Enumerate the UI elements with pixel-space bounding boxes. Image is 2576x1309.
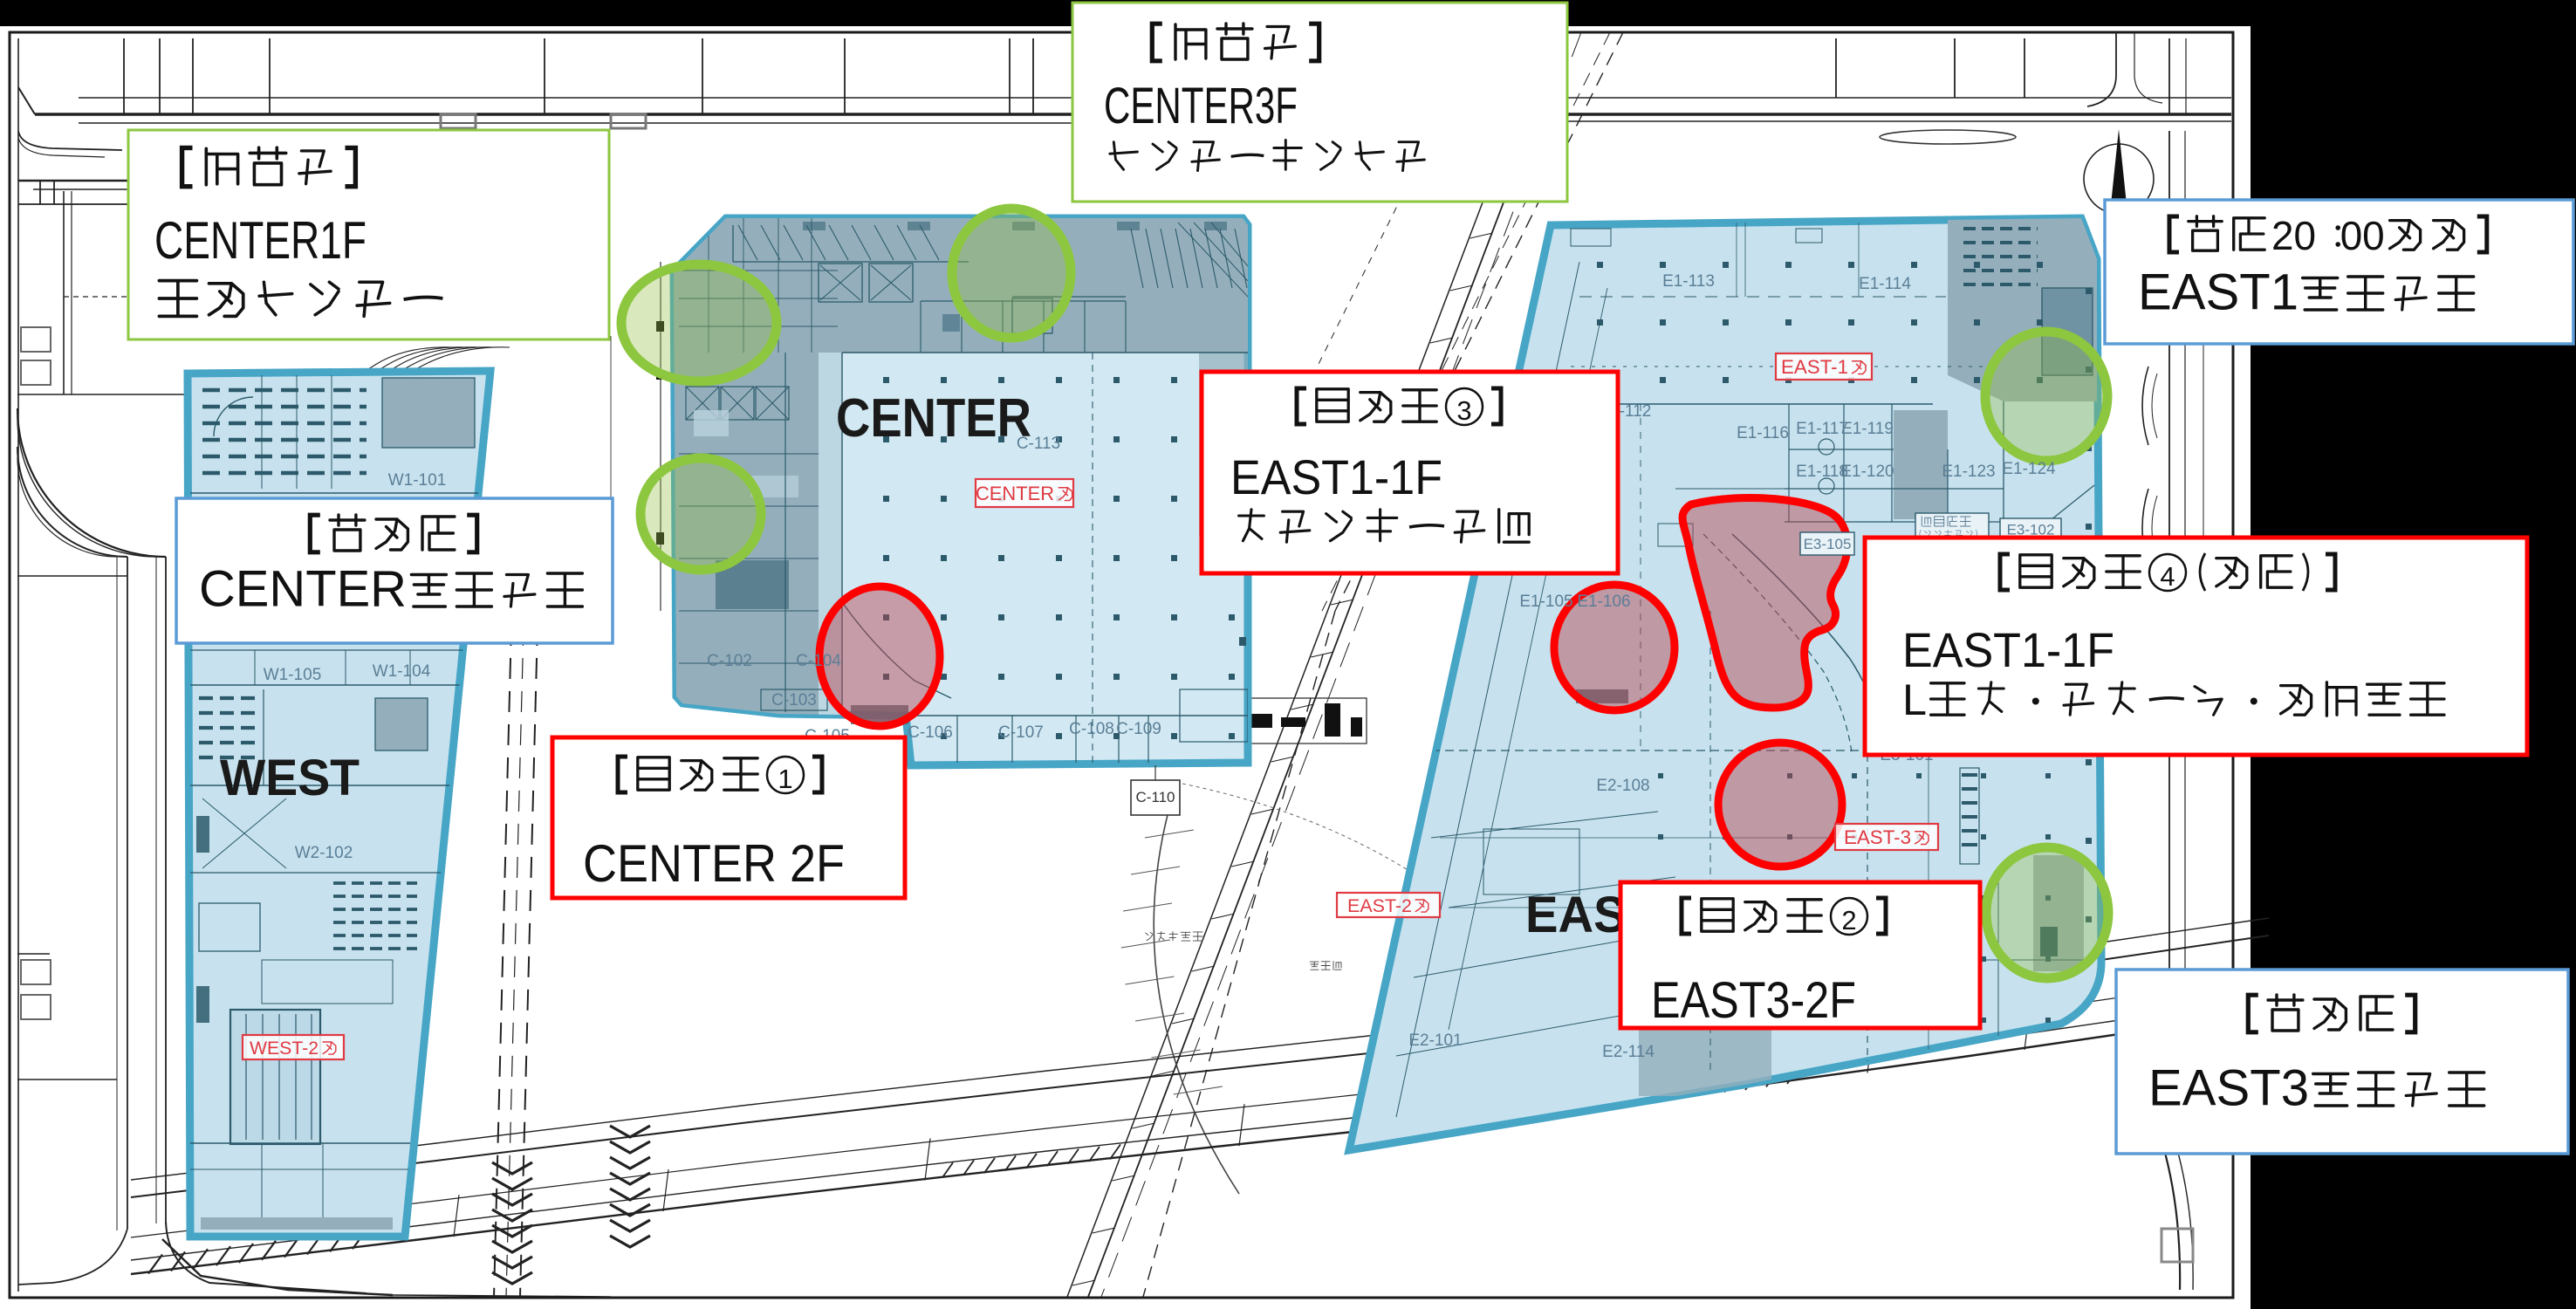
svg-text:C-103: C-103 xyxy=(771,691,817,709)
svg-text:CENTER: CENTER xyxy=(199,561,407,618)
svg-text:EAST1-1F: EAST1-1F xyxy=(1230,449,1442,504)
svg-text:CENTER: CENTER xyxy=(836,388,1031,449)
svg-text:W1-101: W1-101 xyxy=(388,471,447,490)
svg-text:EAST-2: EAST-2 xyxy=(1347,896,1412,916)
svg-text:00: 00 xyxy=(2340,213,2385,258)
svg-text:EAST3-2F: EAST3-2F xyxy=(1651,972,1856,1029)
svg-text:EAST1: EAST1 xyxy=(2138,264,2299,321)
svg-text:3: 3 xyxy=(1456,395,1471,426)
svg-text:EAST1-1F: EAST1-1F xyxy=(1902,622,2114,677)
svg-text:W2-102: W2-102 xyxy=(295,844,353,862)
svg-text:C-109: C-109 xyxy=(1116,720,1161,738)
svg-text:E1-119: E1-119 xyxy=(1841,420,1894,438)
svg-text:E1-123: E1-123 xyxy=(1942,463,1995,481)
svg-text:C-106: C-106 xyxy=(908,723,953,742)
svg-text:4: 4 xyxy=(2160,561,2175,592)
svg-text:C-102: C-102 xyxy=(707,652,752,670)
svg-text:EAST-1: EAST-1 xyxy=(1781,356,1848,378)
svg-text:E1-124: E1-124 xyxy=(2002,460,2056,478)
svg-text:C-107: C-107 xyxy=(998,723,1044,742)
svg-text:W1-105: W1-105 xyxy=(264,666,322,684)
svg-text:C-110: C-110 xyxy=(1135,789,1175,805)
svg-text:E2-101: E2-101 xyxy=(1408,1031,1462,1050)
svg-text:E3-105: E3-105 xyxy=(1804,536,1852,552)
svg-text:20: 20 xyxy=(2271,213,2316,258)
svg-text:CENTER3F: CENTER3F xyxy=(1104,78,1298,134)
svg-text:EAST-3: EAST-3 xyxy=(1844,826,1911,848)
svg-text:E1-106: E1-106 xyxy=(1577,593,1630,611)
svg-text:EAST3: EAST3 xyxy=(2148,1060,2309,1117)
svg-text:E1-116: E1-116 xyxy=(1737,424,1789,442)
svg-text:C-104: C-104 xyxy=(796,652,841,670)
svg-text:CENTER: CENTER xyxy=(976,483,1054,504)
svg-text:E1-114: E1-114 xyxy=(1859,275,1911,293)
svg-text:1: 1 xyxy=(778,764,792,794)
svg-text:E1-105: E1-105 xyxy=(1519,593,1572,611)
svg-text:2: 2 xyxy=(1841,905,1856,935)
svg-text:E2-108: E2-108 xyxy=(1596,777,1649,795)
svg-text:C-108: C-108 xyxy=(1069,720,1114,738)
svg-text:E2-114: E2-114 xyxy=(1602,1043,1655,1061)
svg-text:-112: -112 xyxy=(1620,402,1652,421)
svg-text:E1-120: E1-120 xyxy=(1840,463,1894,481)
svg-text:CENTER 2F: CENTER 2F xyxy=(583,834,845,893)
svg-text:W1-104: W1-104 xyxy=(373,662,431,681)
svg-text:E1-113: E1-113 xyxy=(1662,272,1715,291)
svg-text:WEST: WEST xyxy=(220,750,360,806)
svg-text:L: L xyxy=(1902,675,1927,724)
svg-text:CENTER1F: CENTER1F xyxy=(154,211,367,270)
svg-text:E1-117: E1-117 xyxy=(1796,420,1848,438)
svg-text:WEST-2: WEST-2 xyxy=(250,1038,319,1059)
